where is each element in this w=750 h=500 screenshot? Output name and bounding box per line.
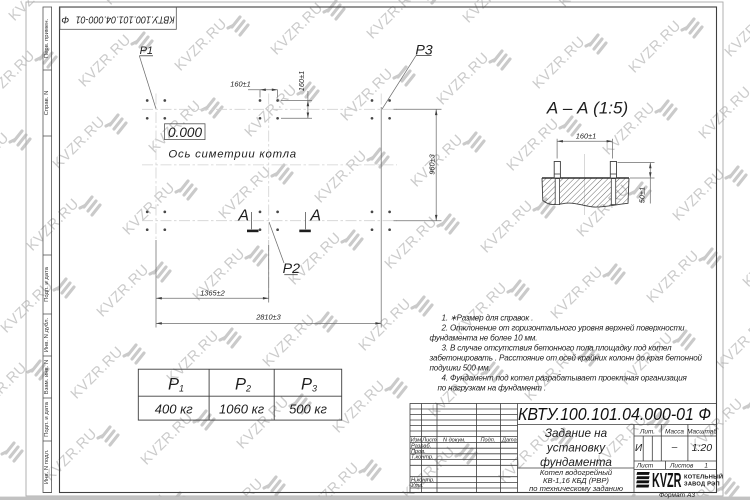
svg-text:КВТУ.100.101.04.000-01 Ф: КВТУ.100.101.04.000-01 Ф bbox=[518, 404, 711, 424]
svg-text:КОТЕЛЬНЫЙ: КОТЕЛЬНЫЙ bbox=[684, 473, 723, 481]
svg-text:установку: установку bbox=[546, 442, 606, 455]
svg-text:подушки 500 мм.: подушки 500 мм. bbox=[430, 363, 491, 372]
svg-text:KVZR.RU: KVZR.RU bbox=[68, 344, 127, 403]
svg-text:KVZR.RU: KVZR.RU bbox=[670, 166, 729, 225]
svg-text:А: А bbox=[237, 208, 249, 225]
svg-text:Ось симетрии котла: Ось симетрии котла bbox=[168, 149, 297, 161]
svg-text:Перв. примен.: Перв. примен. bbox=[44, 19, 50, 59]
svg-text:Справ. N: Справ. N bbox=[44, 91, 50, 116]
svg-text:KVZR.RU: KVZR.RU bbox=[268, 0, 327, 58]
svg-text:KVZR.RU: KVZR.RU bbox=[434, 50, 493, 109]
svg-text:Утв.: Утв. bbox=[410, 483, 424, 489]
svg-text:KVZR.RU: KVZR.RU bbox=[0, 130, 12, 189]
svg-text:160±1: 160±1 bbox=[576, 131, 597, 140]
svg-text:P3: P3 bbox=[415, 43, 432, 59]
svg-text:И: И bbox=[635, 443, 643, 454]
svg-text:А – А (1:5): А – А (1:5) bbox=[546, 99, 628, 118]
svg-text:1. ∗Размер для справок .: 1. ∗Размер для справок . bbox=[442, 313, 534, 322]
svg-text:KVZR.RU: KVZR.RU bbox=[382, 214, 441, 273]
svg-text:KVZR.RU: KVZR.RU bbox=[50, 114, 109, 173]
svg-text:KVZR.RU: KVZR.RU bbox=[312, 148, 371, 207]
svg-text:1: 1 bbox=[179, 384, 184, 394]
svg-text:Задание на: Задание на bbox=[545, 427, 608, 440]
svg-text:KVZR.RU: KVZR.RU bbox=[400, 444, 459, 500]
svg-text:Масштаб: Масштаб bbox=[687, 428, 717, 436]
svg-text:4. Фундамент под котел разраба: 4. Фундамент под котел разрабатывает про… bbox=[442, 373, 688, 382]
svg-text:160±1: 160±1 bbox=[297, 71, 306, 92]
svg-text:KVZR.RU: KVZR.RU bbox=[740, 232, 750, 291]
svg-text:KVZR.RU: KVZR.RU bbox=[644, 248, 703, 307]
svg-text:KVZR.RU: KVZR.RU bbox=[714, 314, 750, 373]
svg-text:KVZR.RU: KVZR.RU bbox=[408, 132, 467, 191]
svg-text:А: А bbox=[309, 208, 321, 225]
svg-text:Формат А3: Формат А3 bbox=[659, 492, 695, 499]
svg-text:KVZR: KVZR bbox=[652, 469, 682, 492]
svg-text:KVZR.RU: KVZR.RU bbox=[0, 48, 38, 107]
svg-text:1: 1 bbox=[704, 463, 708, 470]
svg-text:KVZR.RU: KVZR.RU bbox=[76, 32, 135, 91]
svg-text:1:20: 1:20 bbox=[692, 442, 713, 454]
svg-text:P: P bbox=[168, 376, 179, 394]
svg-text:Инв. N дубл.: Инв. N дубл. bbox=[44, 317, 50, 352]
svg-text:KVZR.RU: KVZR.RU bbox=[24, 196, 83, 255]
svg-text:Т.контр.: Т.контр. bbox=[411, 455, 434, 461]
svg-text:KVZR.RU: KVZR.RU bbox=[286, 230, 345, 289]
svg-text:160±1: 160±1 bbox=[230, 80, 251, 89]
svg-text:3: 3 bbox=[312, 384, 317, 394]
svg-text:2: 2 bbox=[245, 384, 251, 394]
svg-text:KVZR.RU: KVZR.RU bbox=[626, 18, 685, 77]
svg-text:N докум.: N докум. bbox=[443, 438, 466, 444]
svg-text:KVZR.RU: KVZR.RU bbox=[356, 296, 415, 355]
svg-text:Дата: Дата bbox=[501, 438, 517, 444]
svg-text:KVZR.RU: KVZR.RU bbox=[530, 34, 589, 93]
svg-text:KVZR.RU: KVZR.RU bbox=[304, 460, 363, 500]
svg-text:KVZR.RU: KVZR.RU bbox=[364, 0, 423, 42]
svg-text:0.000: 0.000 bbox=[168, 125, 202, 140]
svg-text:P: P bbox=[301, 376, 312, 394]
svg-text:KVZR.RU: KVZR.RU bbox=[548, 264, 607, 323]
svg-text:Ф: Ф bbox=[61, 14, 69, 25]
svg-text:KVZR.RU: KVZR.RU bbox=[722, 2, 750, 61]
svg-text:Подп. и дата: Подп. и дата bbox=[44, 401, 50, 436]
svg-text:2810±3: 2810±3 bbox=[255, 313, 281, 322]
svg-text:Подп. и дата: Подп. и дата bbox=[44, 266, 50, 301]
svg-text:ЗАВОД РЭП: ЗАВОД РЭП bbox=[684, 482, 720, 488]
svg-text:1060 кг: 1060 кг bbox=[219, 402, 265, 417]
svg-text:фундамента не более 10 мм.: фундамента не более 10 мм. bbox=[430, 333, 538, 342]
svg-text:KVZR.RU: KVZR.RU bbox=[138, 410, 197, 469]
svg-text:Подп.: Подп. bbox=[481, 438, 496, 444]
svg-text:KVZR.RU: KVZR.RU bbox=[242, 82, 301, 141]
svg-text:P: P bbox=[235, 376, 246, 394]
svg-text:KVZR.RU: KVZR.RU bbox=[338, 66, 397, 125]
svg-text:KVZR.RU: KVZR.RU bbox=[120, 180, 179, 239]
svg-text:забетонировать . Расстояние от: забетонировать . Расстояние от осей край… bbox=[429, 353, 703, 362]
svg-text:KVZR.RU: KVZR.RU bbox=[6, 0, 65, 24]
svg-text:50±1: 50±1 bbox=[638, 187, 647, 203]
svg-text:–: – bbox=[671, 442, 678, 453]
svg-text:2. Отклонение от горизонтально: 2. Отклонение от горизонтального уровня … bbox=[441, 323, 686, 332]
svg-text:КВТУ.100.101.04.000-01: КВТУ.100.101.04.000-01 bbox=[76, 14, 175, 25]
svg-text:KVZR.RU: KVZR.RU bbox=[460, 0, 519, 26]
svg-text:Масса: Масса bbox=[665, 429, 684, 436]
svg-text:по нагрузкам на фундамент .: по нагрузкам на фундамент . bbox=[438, 383, 546, 392]
svg-text:Лит.: Лит. bbox=[639, 429, 655, 436]
svg-text:KVZR.RU: KVZR.RU bbox=[504, 116, 563, 175]
svg-text:KVZR.RU: KVZR.RU bbox=[478, 198, 537, 257]
svg-text:Взам. инв. N: Взам. инв. N bbox=[44, 360, 50, 394]
svg-text:P1: P1 bbox=[140, 45, 153, 57]
svg-text:960±3: 960±3 bbox=[428, 153, 437, 174]
svg-text:KVZR.RU: KVZR.RU bbox=[42, 426, 101, 485]
svg-text:400 кг: 400 кг bbox=[155, 402, 193, 417]
svg-text:KVZR.RU: KVZR.RU bbox=[0, 442, 4, 500]
svg-text:KVZR.RU: KVZR.RU bbox=[330, 378, 389, 437]
svg-text:по техническому заданию: по техническому заданию bbox=[529, 484, 623, 493]
svg-text:500 кг: 500 кг bbox=[289, 402, 327, 417]
svg-text:KVZR.RU: KVZR.RU bbox=[94, 262, 153, 321]
svg-text:3. В случае отсутствия бетонно: 3. В случае отсутствия бетонного пола пл… bbox=[442, 343, 672, 352]
svg-text:KVZR.RU: KVZR.RU bbox=[172, 16, 231, 75]
svg-text:1365±2: 1365±2 bbox=[200, 288, 225, 297]
svg-text:Инв. N подл.: Инв. N подл. bbox=[44, 449, 50, 484]
